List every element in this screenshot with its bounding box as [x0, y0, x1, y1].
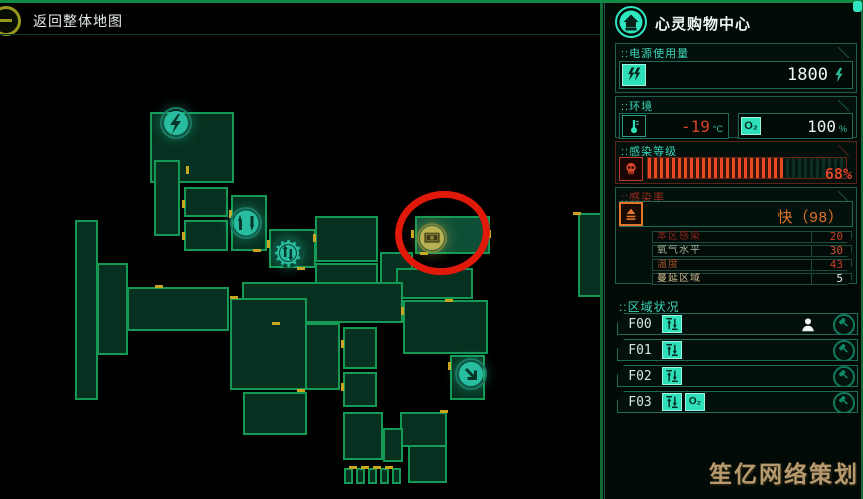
floor-label: F01: [618, 343, 662, 358]
infection-table-row: 本区感染20: [652, 231, 852, 243]
map-room: [392, 468, 401, 484]
temperature-value: -19: [646, 117, 713, 136]
door-marker: [573, 212, 581, 215]
elevator-icon: [662, 341, 682, 359]
game-window: 返回整体地图 心灵购物中心 ::电源使用量 1800 ::环境: [0, 0, 863, 499]
infection-rate-row: 快（98）: [619, 201, 853, 227]
door-marker: [448, 362, 451, 370]
section-prefix: ::: [619, 300, 628, 314]
back-to-overview-button[interactable]: [0, 6, 21, 36]
infection-percent: 68%: [825, 165, 852, 183]
floor-row[interactable]: F01: [617, 339, 858, 361]
temperature-unit: °C: [713, 119, 728, 134]
floor-label: F00: [618, 317, 662, 332]
map-room: [154, 160, 180, 236]
infection-rate-value: 快（98）: [777, 206, 844, 227]
power-value: 1800: [646, 65, 832, 85]
door-marker: [341, 383, 344, 391]
infection-row-value: 30: [811, 246, 851, 256]
door-marker: [313, 234, 316, 242]
floor-row[interactable]: F03O₂: [617, 391, 858, 413]
infection-row-value: 20: [811, 232, 851, 242]
person-icon: [799, 316, 817, 334]
infection-table: 本区感染20氧气水平30温度43蔓延区域5: [640, 231, 852, 287]
door-marker: [267, 240, 270, 248]
skull-icon: [619, 157, 643, 181]
tree-connector-icon: [641, 271, 649, 280]
elevator-icon[interactable]: [229, 206, 263, 240]
door-marker: [186, 166, 189, 174]
oxygen-unit: %: [839, 119, 852, 134]
hammer-icon: [836, 393, 852, 414]
section-prefix: ::: [621, 101, 629, 113]
oxygen-icon: O₂: [741, 117, 761, 135]
door-marker: [401, 307, 404, 315]
map-room: [75, 220, 98, 400]
door-marker: [272, 322, 280, 325]
oxygen-box: O₂ 100 %: [738, 113, 853, 139]
map-room: [400, 412, 447, 447]
top-border: [0, 0, 863, 3]
map-room: [356, 468, 365, 484]
door-marker: [341, 340, 344, 348]
map-room: [578, 213, 602, 297]
door-marker: [440, 410, 448, 413]
map-room: [230, 298, 307, 390]
tree-connector-icon: [641, 243, 649, 252]
build-button[interactable]: [833, 392, 855, 414]
back-to-overview-label: 返回整体地图: [33, 11, 123, 31]
map-header: 返回整体地图: [0, 3, 600, 34]
map-room: [383, 428, 403, 462]
section-prefix: ::: [621, 48, 629, 60]
home-icon: [614, 5, 648, 39]
minus-icon: [0, 19, 12, 22]
hammer-icon: [836, 315, 852, 336]
door-marker: [373, 466, 381, 469]
map-sidebar-divider: [600, 0, 603, 499]
door-marker: [349, 466, 357, 469]
zone-title: 心灵购物中心: [655, 13, 751, 34]
hammer-icon: [836, 341, 852, 362]
door-marker: [253, 249, 261, 252]
scrollbar-thumb[interactable]: [853, 1, 862, 12]
power-section: ::电源使用量 1800: [615, 43, 857, 93]
infection-row-label: 本区感染: [653, 232, 811, 242]
infection-row-label: 氧气水平: [653, 246, 811, 256]
map-room: [184, 187, 228, 217]
infection-table-row: 温度43: [652, 259, 852, 271]
build-button[interactable]: [833, 366, 855, 388]
map-room: [184, 220, 228, 251]
power-icon[interactable]: [159, 106, 193, 140]
floor-row[interactable]: F02: [617, 365, 858, 387]
infection-table-row: 蔓延区域5: [652, 273, 852, 285]
environment-section: ::环境 -19 °C O₂ 100 %: [615, 96, 857, 138]
power-label: 电源使用量: [629, 48, 689, 60]
map-room: [343, 327, 377, 369]
infection-row-value: 5: [811, 274, 851, 284]
power-row: 1800: [619, 61, 853, 89]
map-room: [343, 372, 377, 407]
infection-rate-section: ::感染率 快（98） 本区感染20氧气水平30温度43蔓延区域5: [615, 187, 857, 284]
watermark: 笙亿网络策划: [709, 455, 859, 489]
stairs-down-icon[interactable]: [454, 357, 488, 391]
map-room: [305, 323, 340, 390]
infection-bar-fill: [648, 158, 783, 178]
infection-bar: [647, 157, 847, 179]
oxygen-value: 100: [761, 117, 839, 136]
area-rows: F00F01F02F03O₂: [617, 313, 858, 417]
floor-row[interactable]: F00: [617, 313, 858, 335]
door-marker: [361, 466, 369, 469]
oxygen-icon: O₂: [685, 393, 705, 411]
thermometer-icon: [622, 115, 646, 137]
temperature-box: -19 °C: [619, 113, 729, 139]
build-button[interactable]: [833, 340, 855, 362]
door-marker: [445, 299, 453, 302]
sidebar-panel: 心灵购物中心 ::电源使用量 1800 ::环境 -19: [604, 3, 863, 499]
infection-row-value: 43: [811, 260, 851, 270]
power-plug-icon: [622, 64, 646, 86]
map-room: [97, 263, 128, 355]
map-header-divider: [0, 34, 600, 35]
door-marker: [182, 200, 185, 208]
door-marker: [155, 285, 163, 288]
hammer-icon: [836, 367, 852, 388]
machine-icon[interactable]: [271, 236, 305, 270]
map-room: [127, 287, 229, 331]
floor-label: F02: [618, 369, 662, 384]
infection-row-label: 蔓延区域: [653, 274, 811, 284]
floor-map[interactable]: [0, 35, 600, 499]
tree-connector-icon: [641, 257, 649, 266]
door-marker: [385, 466, 393, 469]
build-button[interactable]: [833, 314, 855, 336]
map-room: [380, 468, 389, 484]
map-room: [243, 392, 307, 435]
map-room: [343, 412, 383, 460]
elevator-icon: [662, 393, 682, 411]
tree-connector-icon: [641, 229, 649, 238]
door-marker: [230, 296, 238, 299]
map-room: [315, 216, 378, 262]
elevator-icon: [662, 367, 682, 385]
area-status-label: 区域状况: [628, 300, 680, 314]
map-room: [408, 445, 447, 483]
map-room: [368, 468, 377, 484]
floor-label: F03: [618, 395, 662, 410]
environment-label: 环境: [629, 101, 653, 113]
map-room: [344, 468, 353, 484]
elevator-icon: [662, 315, 682, 333]
infection-level-section: ::感染等级 68%: [615, 141, 857, 184]
infection-row-label: 温度: [653, 260, 811, 270]
infection-table-row: 氧气水平30: [652, 245, 852, 257]
door-marker: [297, 389, 305, 392]
bolt-icon: [832, 67, 846, 83]
rate-rising-icon: [619, 202, 643, 226]
door-marker: [182, 232, 185, 240]
map-room: [403, 300, 488, 354]
sidebar-header: 心灵购物中心: [605, 3, 863, 43]
